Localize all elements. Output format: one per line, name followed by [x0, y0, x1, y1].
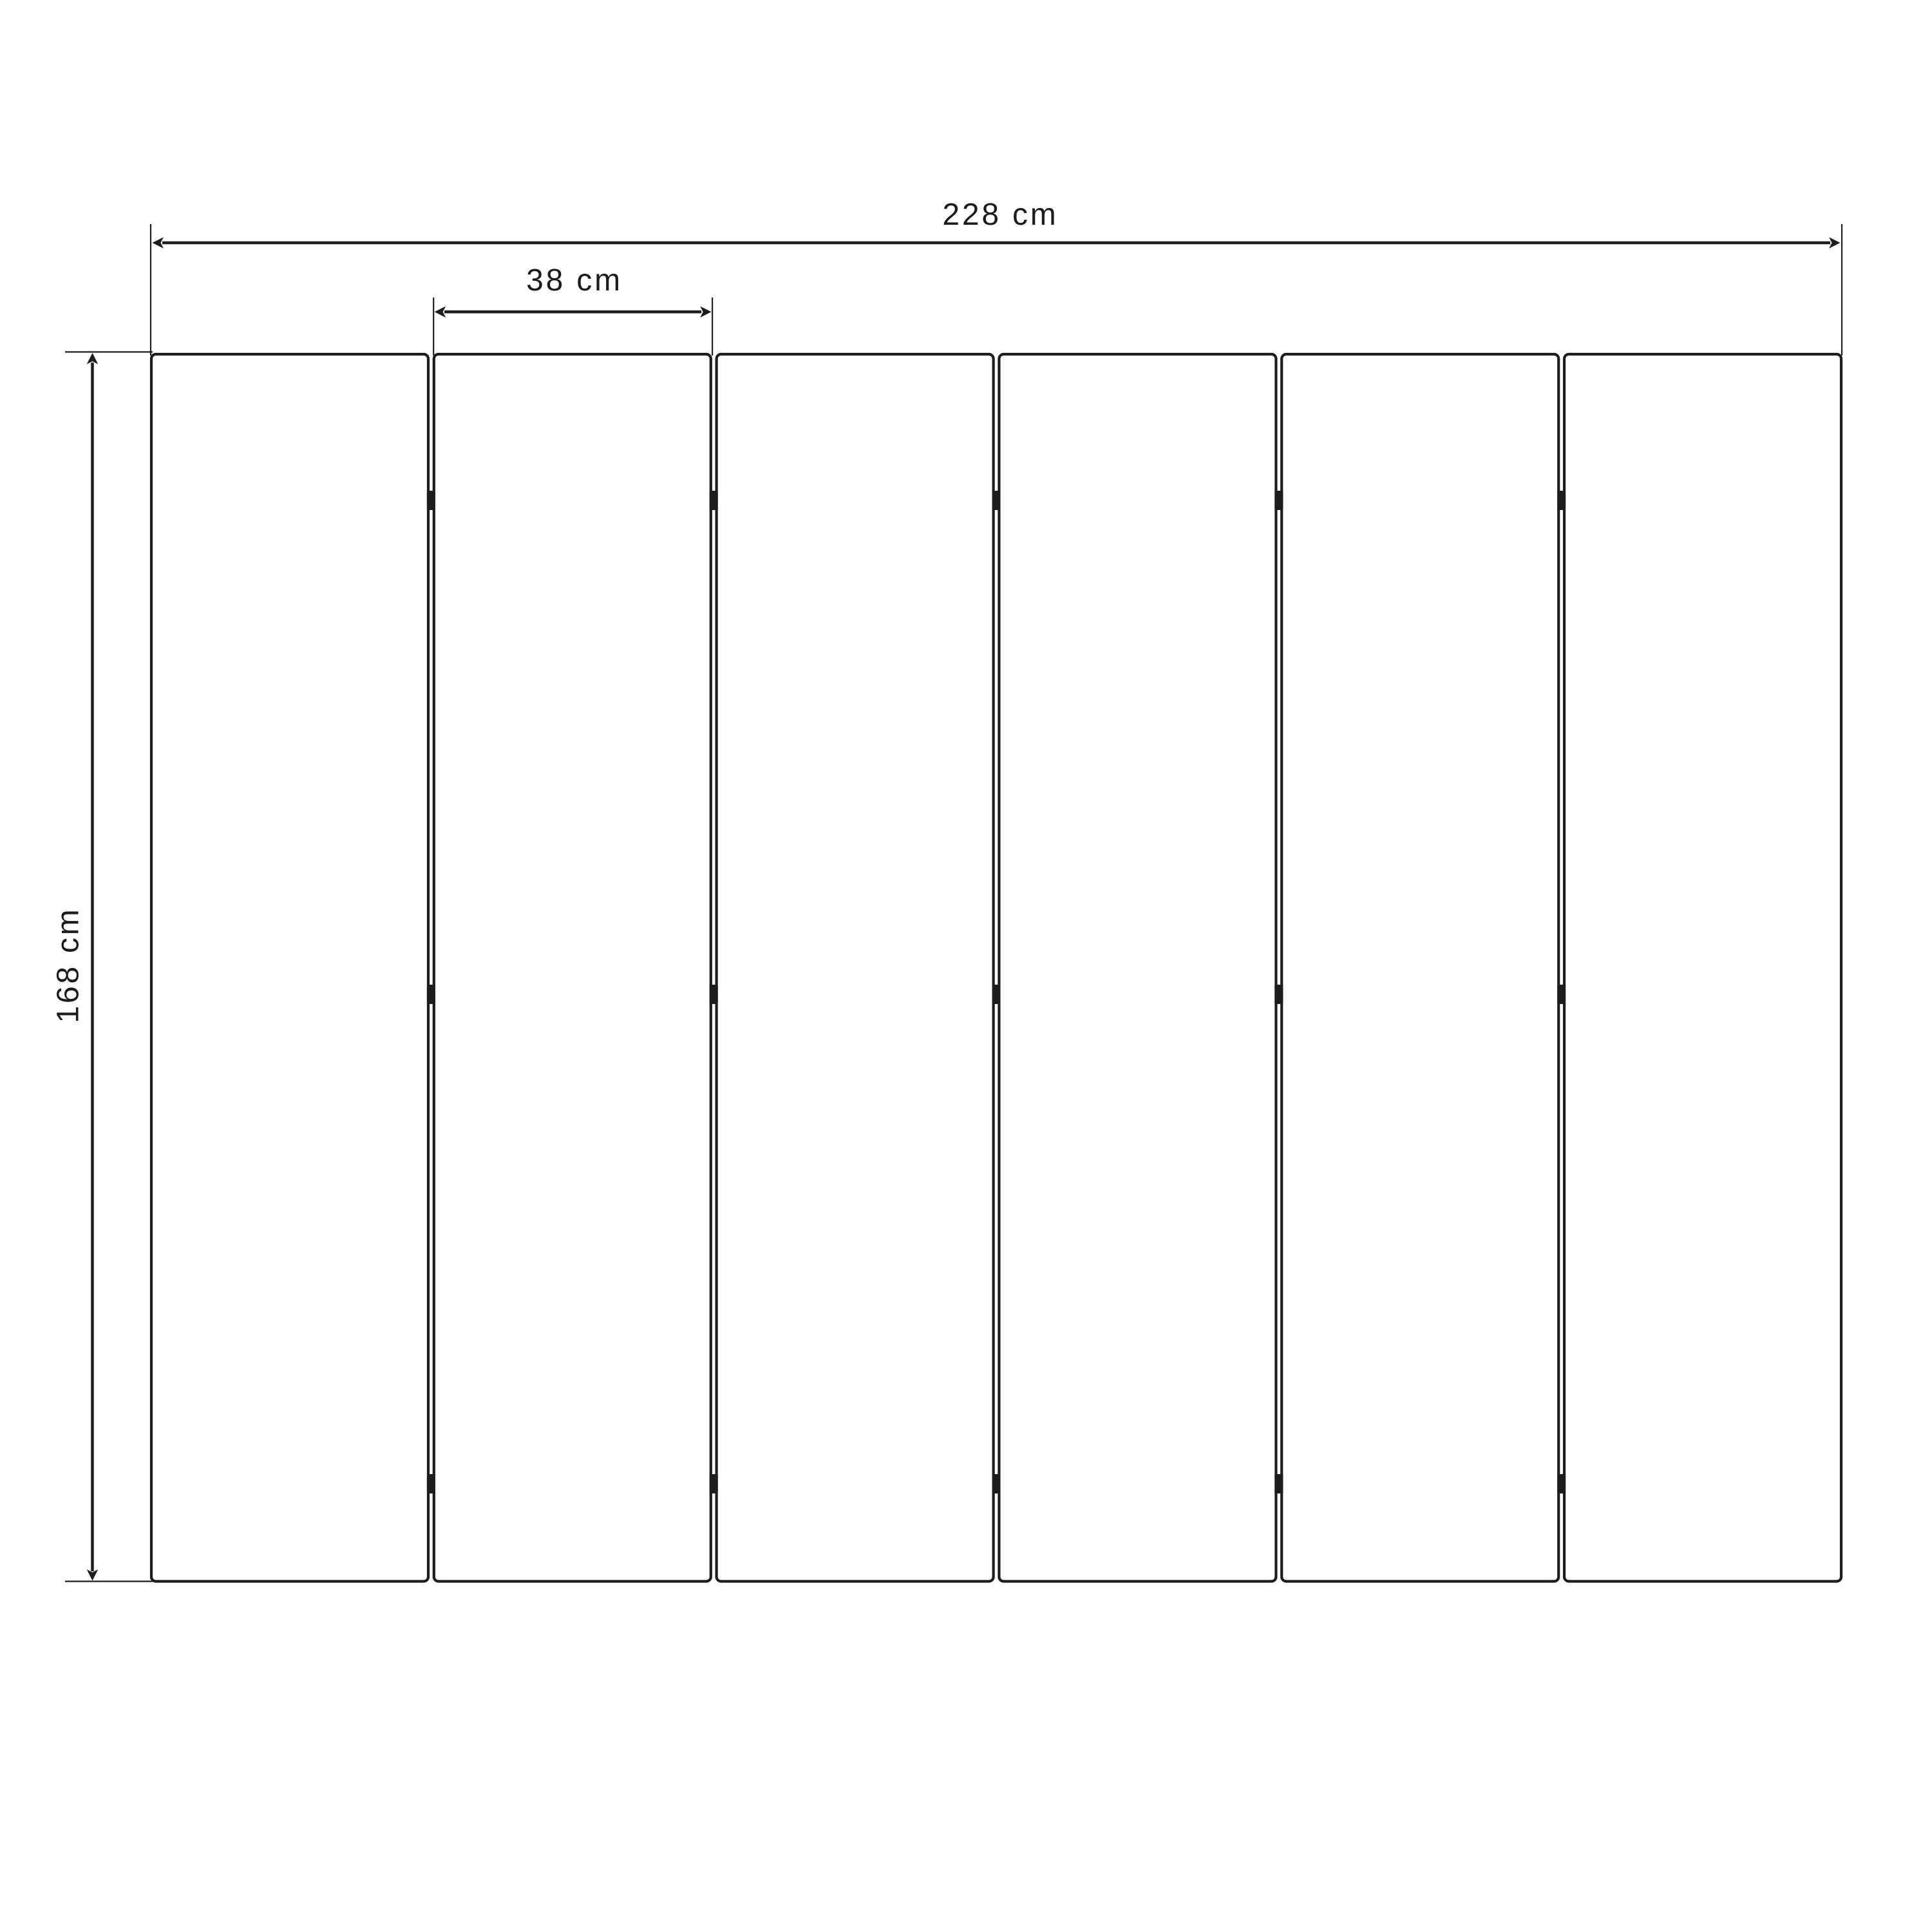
svg-text:38 cm: 38 cm — [526, 263, 623, 298]
svg-text:228 cm: 228 cm — [942, 198, 1058, 232]
svg-text:168 cm: 168 cm — [52, 907, 86, 1023]
